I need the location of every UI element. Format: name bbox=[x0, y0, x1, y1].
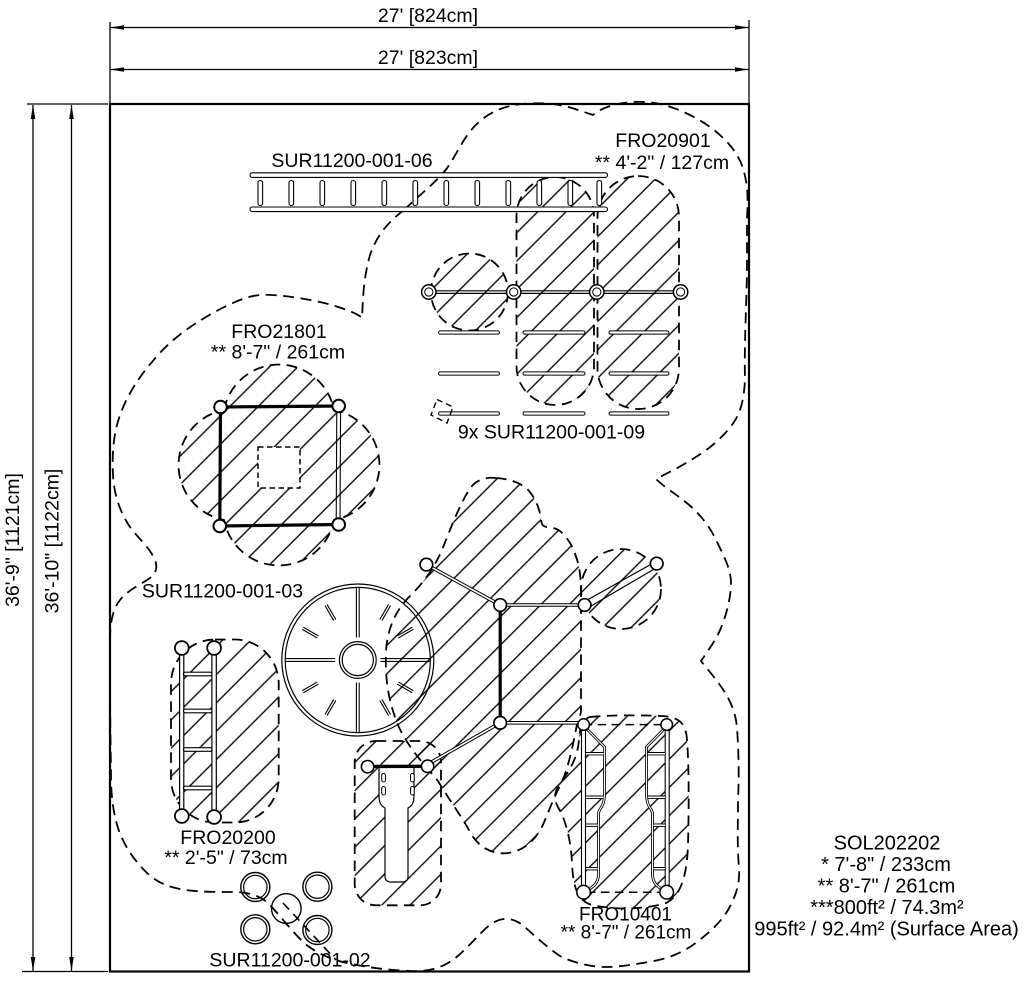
svg-text:SUR11200-001-03: SUR11200-001-03 bbox=[142, 581, 303, 603]
svg-text:995ft² / 92.4m² (Surface Area): 995ft² / 92.4m² (Surface Area) bbox=[754, 919, 1019, 941]
svg-text:FRO21801: FRO21801 bbox=[231, 321, 326, 343]
svg-text:** 4'-2" / 127cm: ** 4'-2" / 127cm bbox=[595, 152, 729, 174]
svg-text:SUR11200-001-02: SUR11200-001-02 bbox=[209, 950, 370, 972]
svg-text:FRO20200: FRO20200 bbox=[180, 827, 276, 849]
svg-text:** 2'-5" / 73cm: ** 2'-5" / 73cm bbox=[164, 847, 287, 869]
svg-text:** 8'-7" / 261cm: ** 8'-7" / 261cm bbox=[561, 923, 692, 944]
svg-text:** 8'-7" / 261cm: ** 8'-7" / 261cm bbox=[211, 342, 345, 364]
svg-text:***800ft² / 74.3m²: ***800ft² / 74.3m² bbox=[810, 897, 964, 919]
svg-text:* 7'-8" / 233cm: * 7'-8" / 233cm bbox=[821, 854, 951, 876]
svg-text:FRO20901: FRO20901 bbox=[615, 130, 710, 152]
svg-text:9x SUR11200-001-09: 9x SUR11200-001-09 bbox=[458, 422, 645, 444]
svg-text:SUR11200-001-06: SUR11200-001-06 bbox=[271, 150, 432, 172]
svg-text:SOL202202: SOL202202 bbox=[834, 833, 941, 855]
svg-text:36'-10" [1122cm]: 36'-10" [1122cm] bbox=[42, 469, 64, 614]
svg-text:27' [823cm]: 27' [823cm] bbox=[378, 47, 478, 69]
svg-text:36'-9" [1121cm]: 36'-9" [1121cm] bbox=[2, 473, 24, 607]
svg-text:** 8'-7" / 261cm: ** 8'-7" / 261cm bbox=[818, 876, 956, 898]
svg-text:27' [824cm]: 27' [824cm] bbox=[378, 5, 478, 27]
